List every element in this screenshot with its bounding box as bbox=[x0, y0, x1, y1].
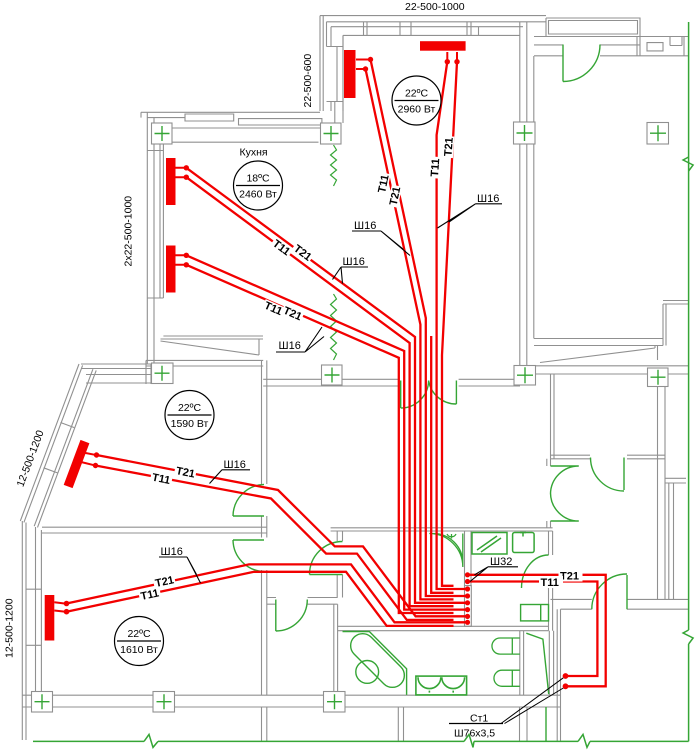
svg-text:22ºC: 22ºC bbox=[178, 402, 202, 414]
svg-text:12-500-1200: 12-500-1200 bbox=[4, 598, 16, 658]
svg-text:Ш16: Ш16 bbox=[354, 220, 376, 232]
svg-text:Кухня: Кухня bbox=[240, 147, 268, 159]
svg-text:Т21: Т21 bbox=[443, 137, 456, 157]
svg-text:Т11: Т11 bbox=[541, 577, 559, 589]
svg-text:Ш32: Ш32 bbox=[490, 556, 512, 568]
svg-text:Т11: Т11 bbox=[429, 158, 442, 177]
svg-text:Ст1: Ст1 bbox=[470, 713, 488, 725]
svg-text:Ш16: Ш16 bbox=[161, 546, 183, 558]
svg-text:2x22-500-1000: 2x22-500-1000 bbox=[123, 196, 135, 267]
svg-text:Ш76х3,5: Ш76х3,5 bbox=[454, 728, 495, 740]
svg-text:22-500-600: 22-500-600 bbox=[302, 54, 314, 108]
svg-text:2460 Вт: 2460 Вт bbox=[239, 189, 277, 201]
svg-text:22-500-1000: 22-500-1000 bbox=[405, 1, 465, 13]
svg-text:22ºC: 22ºC bbox=[405, 88, 429, 100]
svg-text:Ш16: Ш16 bbox=[279, 340, 301, 352]
svg-text:Ш16: Ш16 bbox=[477, 193, 499, 205]
svg-text:18ºC: 18ºC bbox=[246, 173, 270, 185]
svg-text:1610 Вт: 1610 Вт bbox=[120, 644, 158, 656]
svg-text:2960 Вт: 2960 Вт bbox=[398, 104, 436, 116]
svg-text:1590 Вт: 1590 Вт bbox=[171, 418, 209, 430]
svg-text:Ш16: Ш16 bbox=[343, 256, 365, 268]
svg-text:22ºC: 22ºC bbox=[127, 628, 151, 640]
svg-text:Ш16: Ш16 bbox=[224, 459, 246, 471]
